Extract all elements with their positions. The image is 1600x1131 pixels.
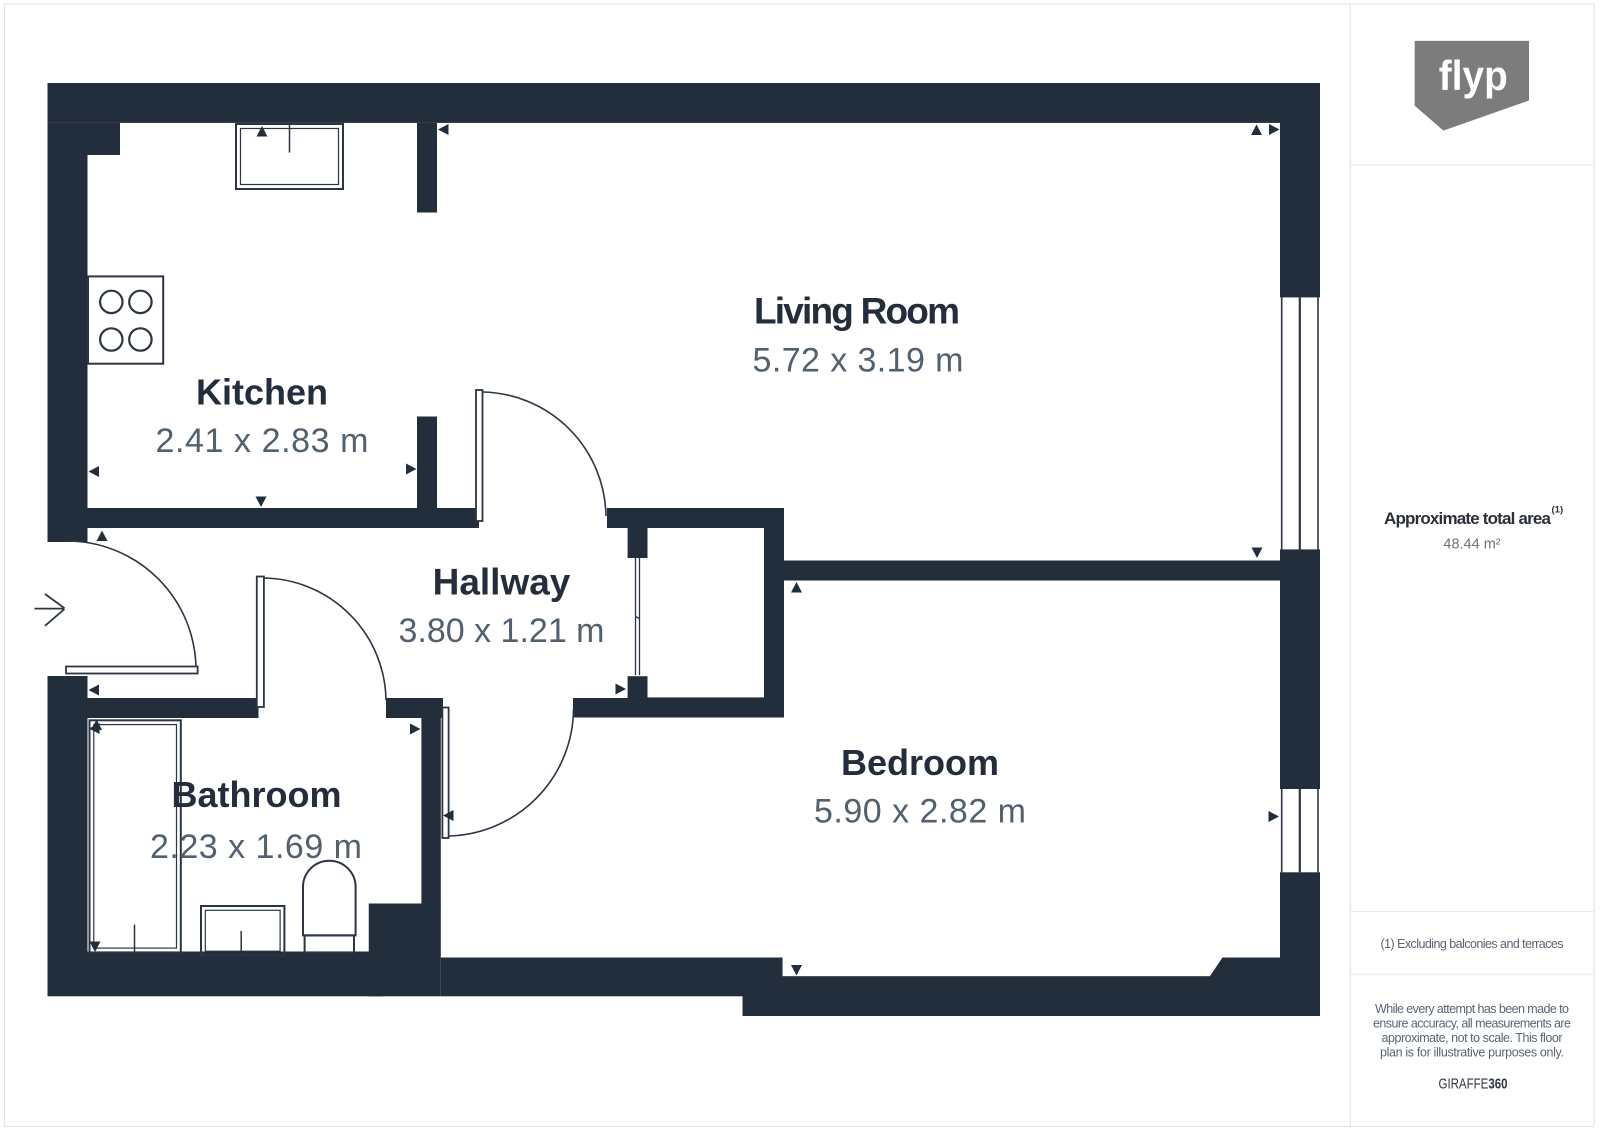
- svg-text:48.44 m²: 48.44 m²: [1443, 537, 1500, 553]
- svg-text:(1) Excluding balconies and te: (1) Excluding balconies and terraces: [1381, 937, 1564, 951]
- svg-text:5.90 x 2.82 m: 5.90 x 2.82 m: [814, 793, 1026, 831]
- svg-text:GIRAFFE360: GIRAFFE360: [1439, 1076, 1508, 1093]
- svg-text:5.72 x 3.19 m: 5.72 x 3.19 m: [753, 342, 964, 380]
- svg-text:Living Room: Living Room: [754, 291, 960, 332]
- svg-text:(1): (1): [1552, 505, 1564, 516]
- svg-text:Kitchen: Kitchen: [196, 372, 328, 413]
- svg-text:Approximate total area: Approximate total area: [1384, 509, 1552, 528]
- svg-text:While every attempt has been m: While every attempt has been made to: [1375, 1002, 1569, 1016]
- svg-text:Hallway: Hallway: [433, 562, 571, 603]
- svg-text:3.80 x 1.21 m: 3.80 x 1.21 m: [399, 612, 605, 650]
- svg-text:ensure accuracy, all measureme: ensure accuracy, all measurements are: [1373, 1017, 1571, 1031]
- svg-text:2.41 x 2.83 m: 2.41 x 2.83 m: [156, 422, 369, 460]
- svg-text:flyp: flyp: [1439, 52, 1508, 99]
- svg-text:Bedroom: Bedroom: [841, 742, 999, 783]
- svg-text:Bathroom: Bathroom: [172, 774, 342, 815]
- svg-text:2.23 x 1.69 m: 2.23 x 1.69 m: [150, 828, 362, 866]
- svg-text:approximate, not to scale. Thi: approximate, not to scale. This floor: [1382, 1031, 1563, 1045]
- svg-text:plan is for illustrative purpo: plan is for illustrative purposes only.: [1380, 1046, 1564, 1060]
